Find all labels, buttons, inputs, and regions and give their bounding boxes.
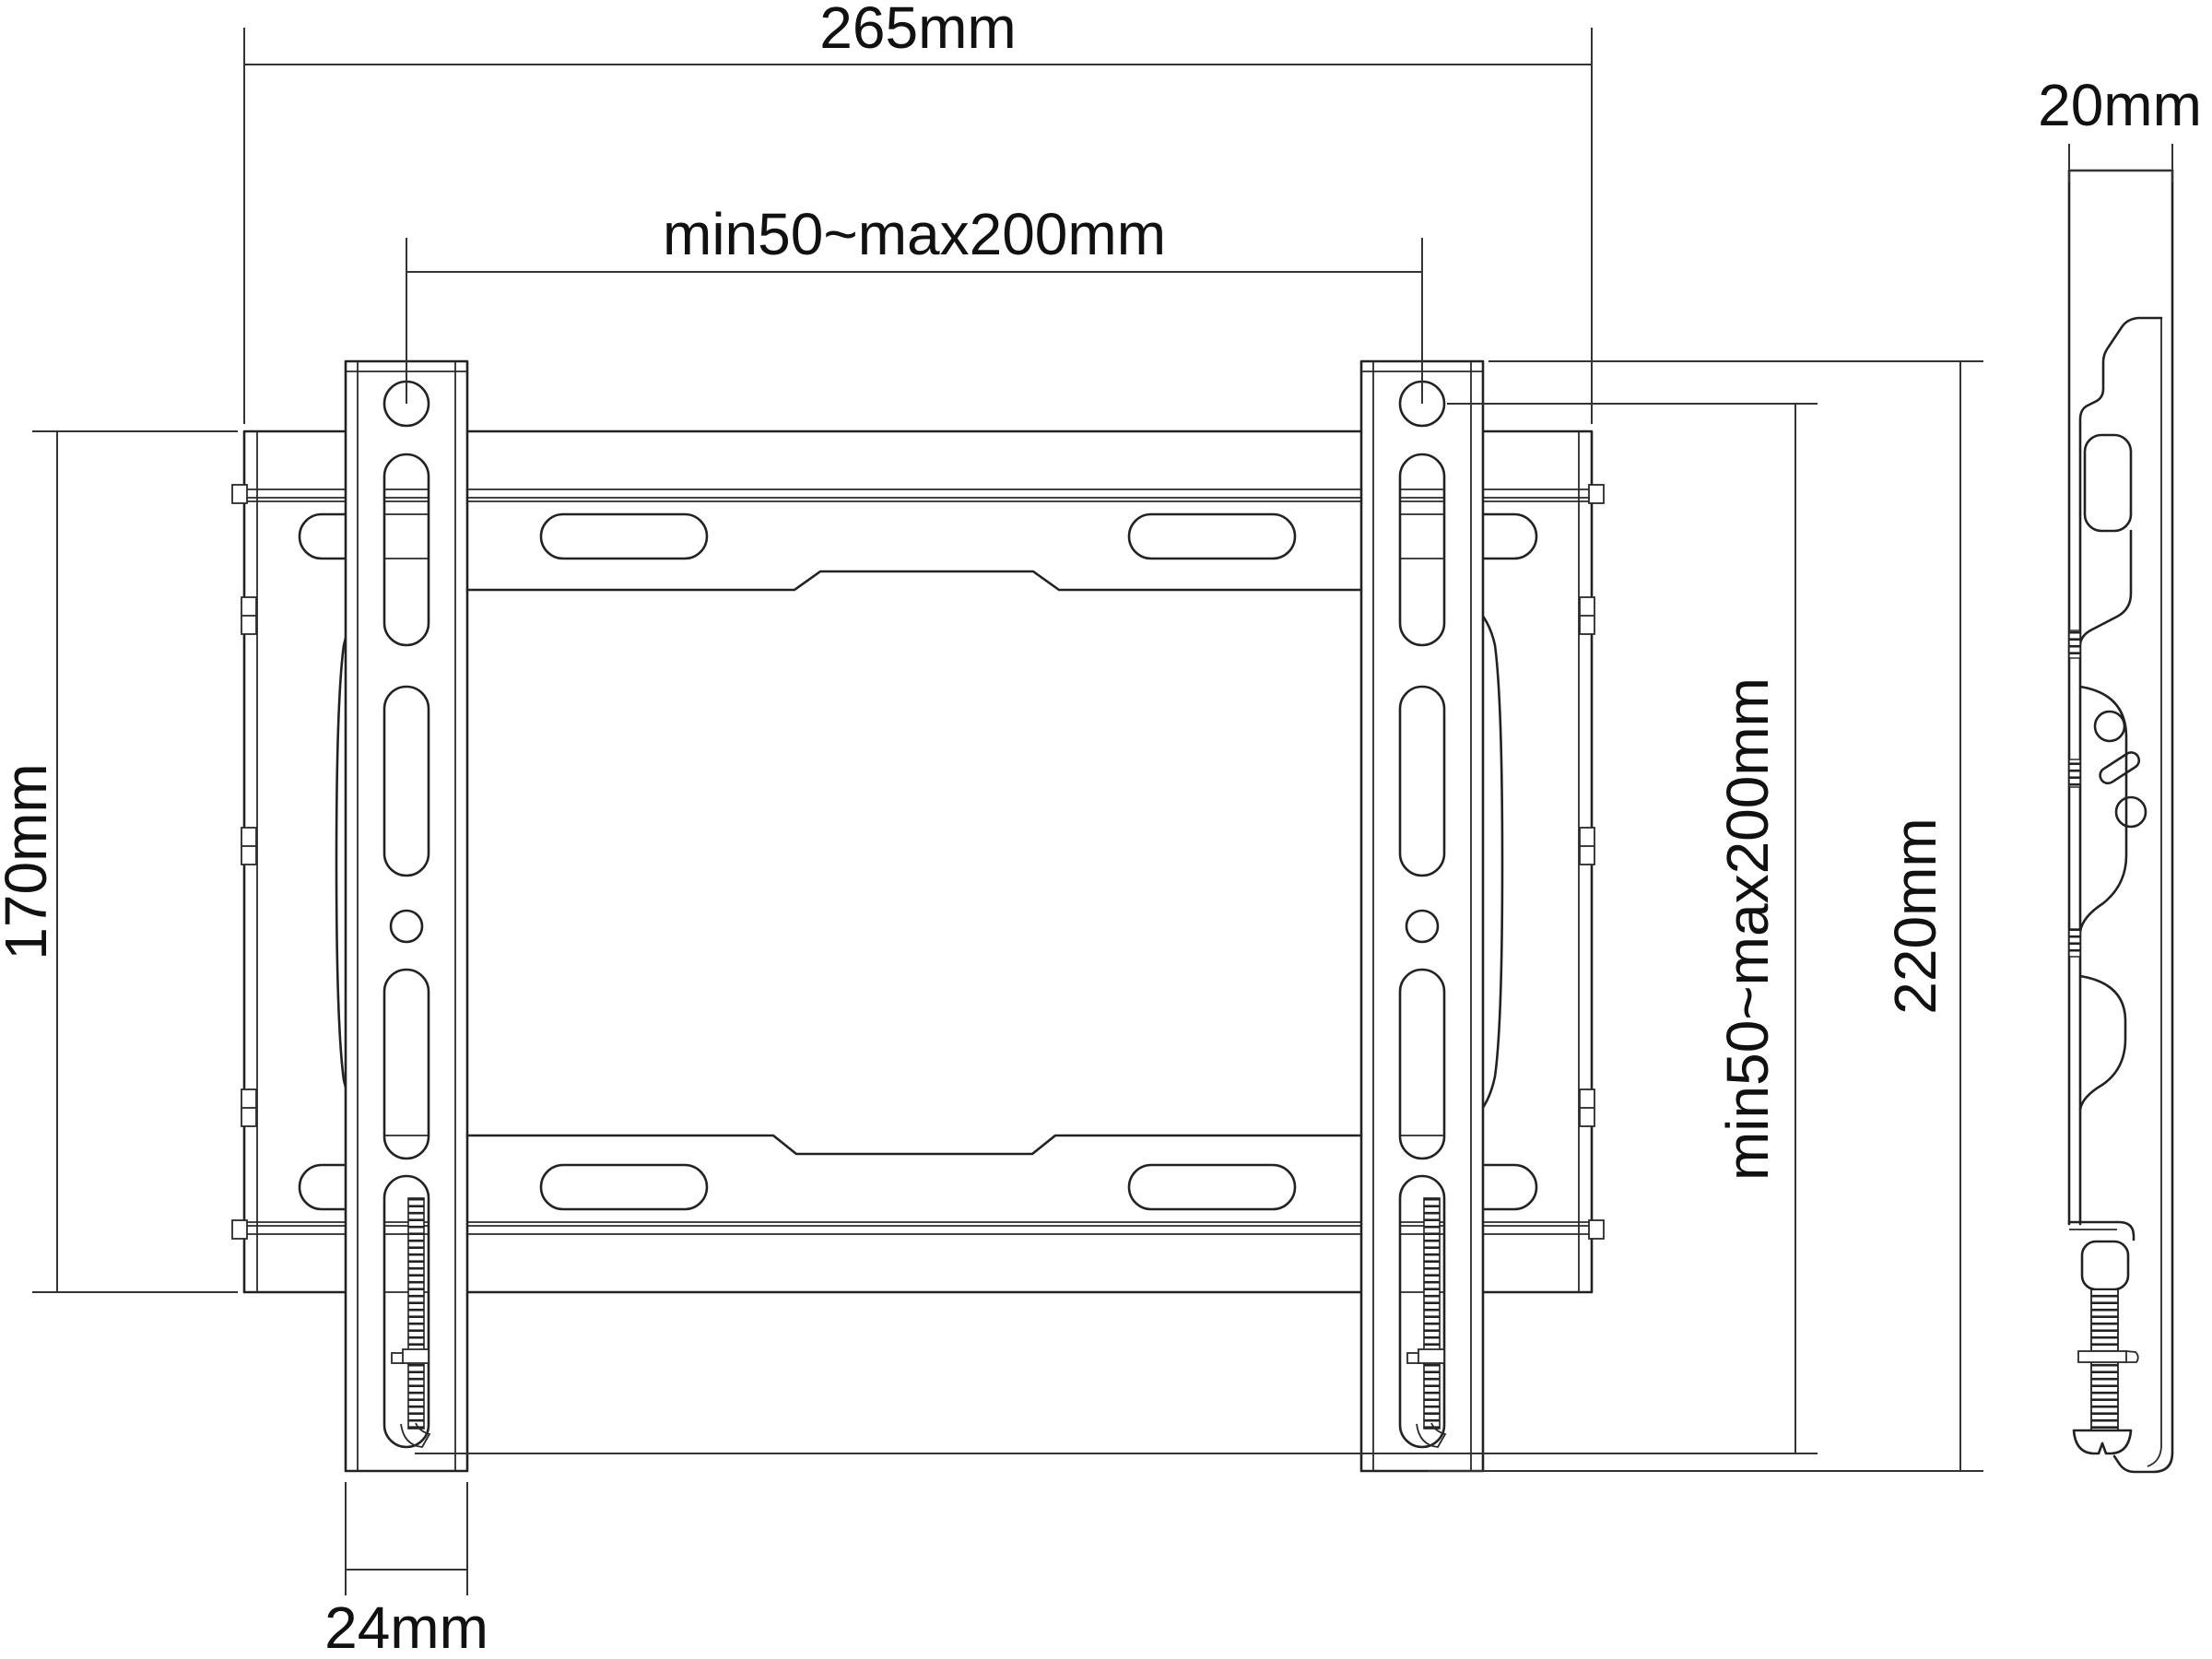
front-view	[232, 361, 1818, 1471]
dim-label-overall-width: 265mm	[819, 0, 1016, 61]
side-step-1	[2080, 531, 2131, 644]
technical-drawing-canvas: 265mm min50~max200mm 170mm min50~max200m…	[0, 0, 2212, 1659]
side-serrations	[2069, 630, 2080, 957]
side-step-2	[2080, 687, 2126, 932]
side-screw-washer	[2078, 1351, 2126, 1362]
dimension-plate-height: 170mm	[0, 431, 238, 1292]
side-view	[2069, 171, 2172, 1472]
side-hook-contour	[2080, 318, 2161, 1224]
side-bottom-lip	[2069, 1222, 2134, 1240]
right-rail	[1361, 361, 1483, 1471]
dim-label-rail-height: 220mm	[1882, 818, 1948, 1014]
side-hook-foot	[2085, 435, 2131, 531]
dimension-horizontal-hole-spacing: min50~max200mm	[406, 201, 1422, 404]
dim-label-rail-width: 24mm	[324, 1594, 488, 1659]
dimension-bracket-depth: 20mm	[2038, 72, 2202, 182]
side-slot-angled	[2097, 749, 2142, 786]
side-bottom-corner	[2147, 1447, 2161, 1466]
side-step-3	[2080, 976, 2125, 1110]
dim-label-horizontal-hole-spacing: min50~max200mm	[663, 201, 1166, 267]
side-hole-lower	[2116, 797, 2146, 827]
side-hole-upper	[2095, 712, 2124, 741]
side-screw-head	[2074, 1430, 2131, 1453]
wall-mount-drawing: 265mm min50~max200mm 170mm min50~max200m…	[0, 0, 2212, 1659]
dimension-rail-width: 24mm	[324, 1482, 488, 1659]
side-washer-nub	[2126, 1351, 2138, 1362]
dim-label-bracket-depth: 20mm	[2038, 72, 2202, 138]
side-bottom-foot	[2082, 1241, 2128, 1289]
dim-label-plate-height: 170mm	[0, 763, 59, 959]
dim-label-vertical-hole-spacing: min50~max200mm	[1714, 677, 1781, 1181]
left-rail	[346, 361, 467, 1471]
